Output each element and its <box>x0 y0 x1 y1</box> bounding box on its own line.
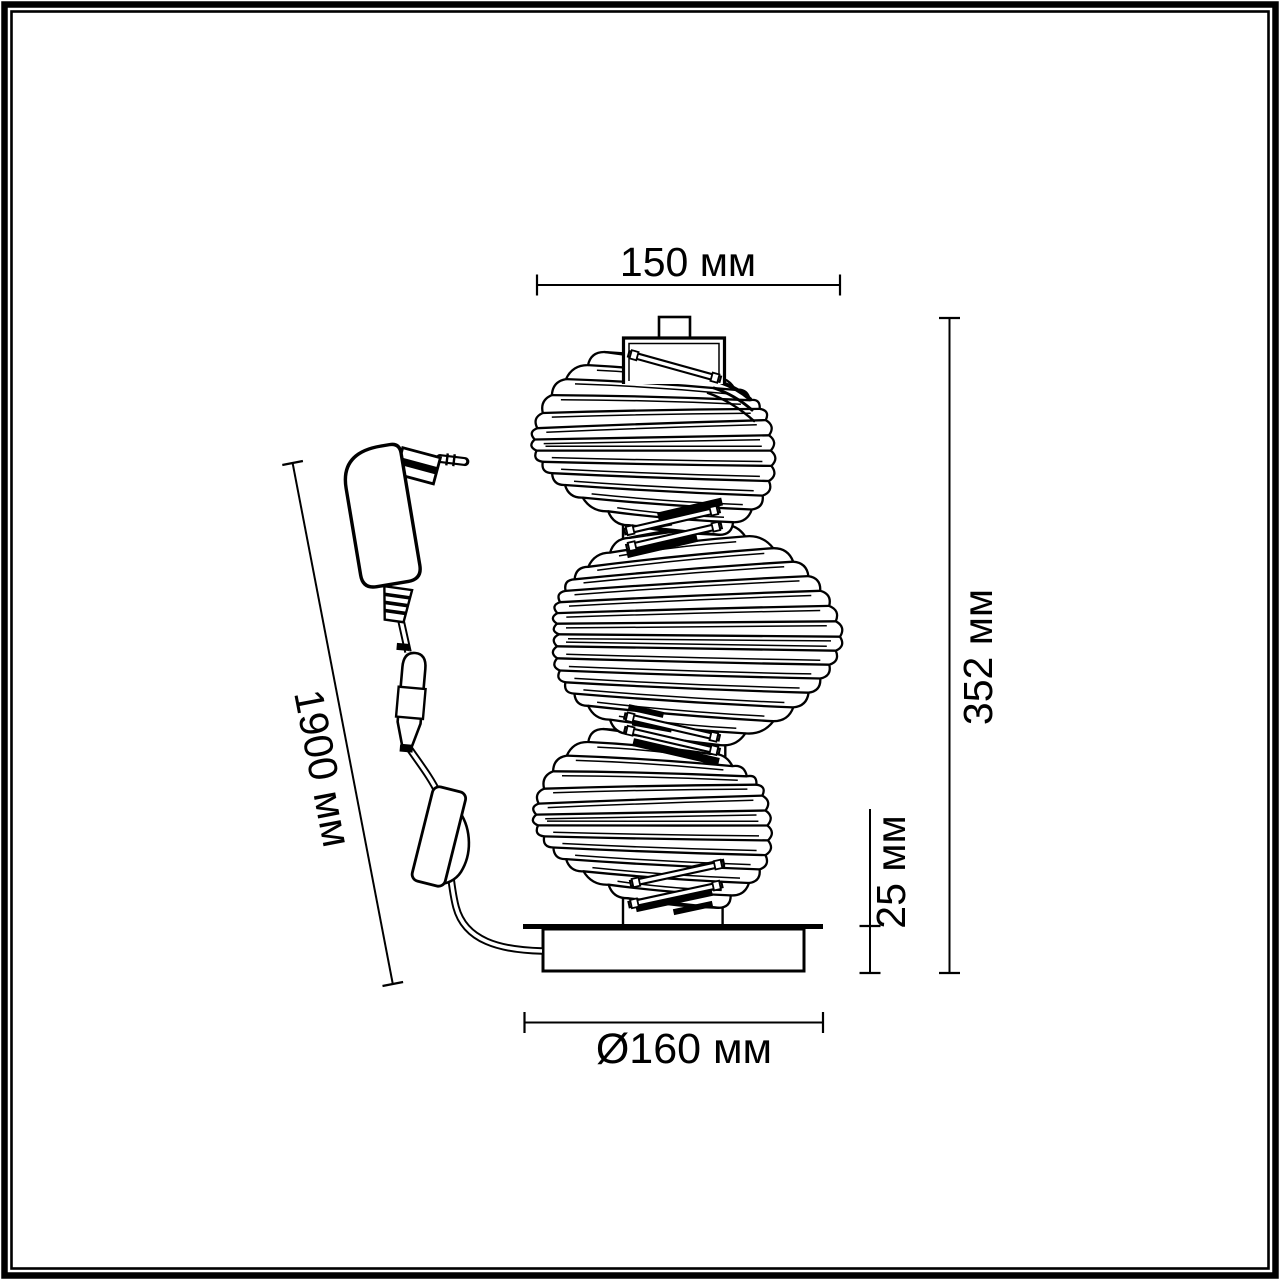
svg-text:150 мм: 150 мм <box>620 239 756 285</box>
svg-text:352 мм: 352 мм <box>955 589 1001 725</box>
svg-text:Ø160 мм: Ø160 мм <box>596 1025 772 1073</box>
svg-text:25 мм: 25 мм <box>868 815 914 928</box>
